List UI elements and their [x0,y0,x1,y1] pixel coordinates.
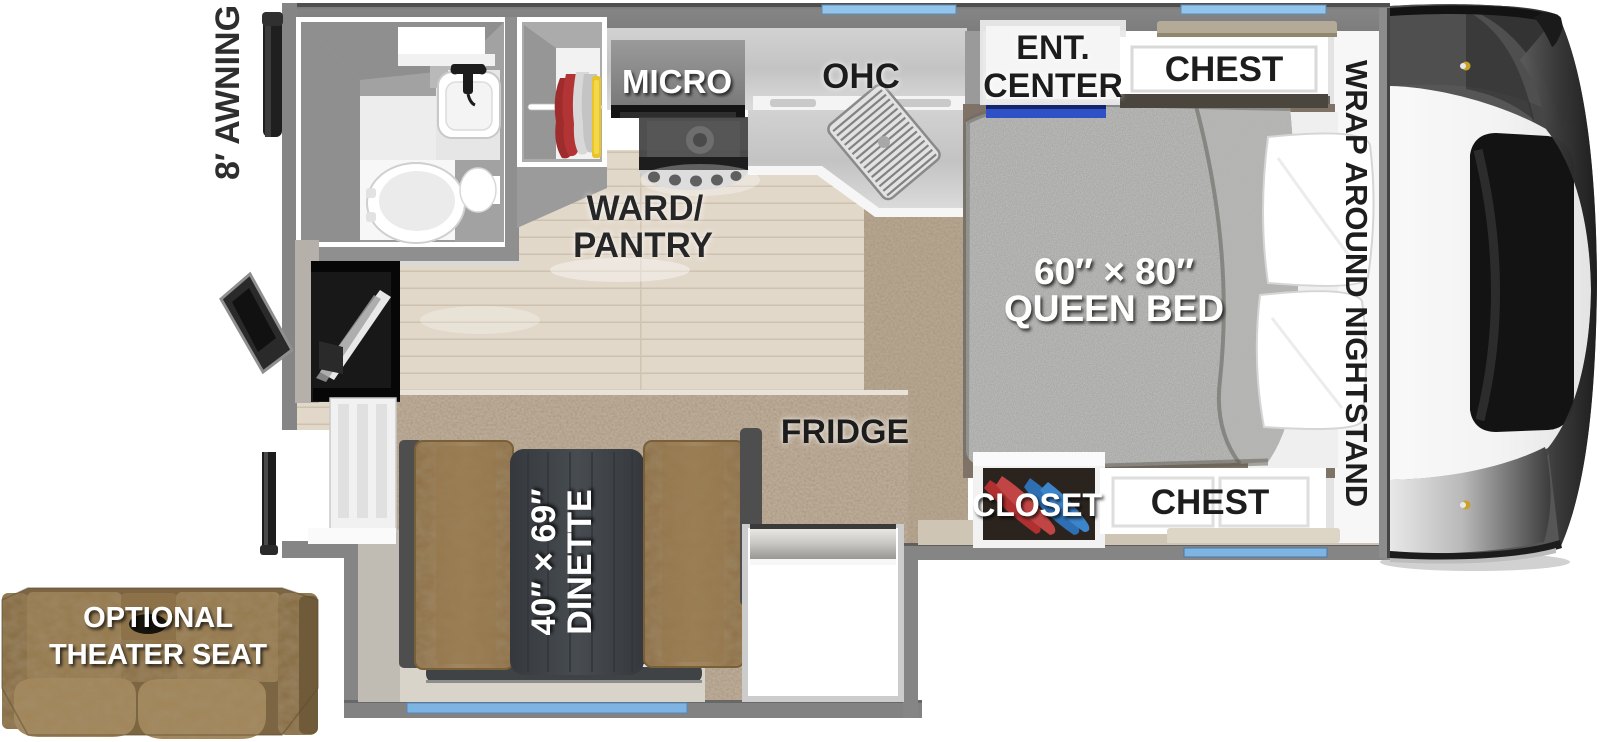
svg-text:QUEEN BED: QUEEN BED [1004,288,1224,329]
svg-text:CHEST: CHEST [1165,50,1284,89]
svg-text:8′ AWNING: 8′ AWNING [209,5,247,180]
svg-text:OPTIONAL: OPTIONAL [83,602,233,634]
svg-text:DINETTE: DINETTE [561,489,599,634]
svg-text:OHC: OHC [822,57,900,96]
svg-text:WRAP AROUND NIGHTSTAND: WRAP AROUND NIGHTSTAND [1339,60,1374,507]
svg-text:40″ × 69″: 40″ × 69″ [525,489,563,636]
svg-text:60″ × 80″: 60″ × 80″ [1034,251,1194,292]
svg-text:MICRO: MICRO [622,63,732,100]
svg-text:WARD/: WARD/ [587,189,704,228]
svg-text:PANTRY: PANTRY [573,226,713,265]
svg-text:FRIDGE: FRIDGE [781,413,909,451]
svg-text:CENTER: CENTER [983,67,1123,105]
svg-text:ENT.: ENT. [1016,29,1090,67]
svg-text:CLOSET: CLOSET [972,487,1102,523]
svg-text:THEATER SEAT: THEATER SEAT [49,639,267,671]
svg-text:CHEST: CHEST [1151,483,1270,522]
